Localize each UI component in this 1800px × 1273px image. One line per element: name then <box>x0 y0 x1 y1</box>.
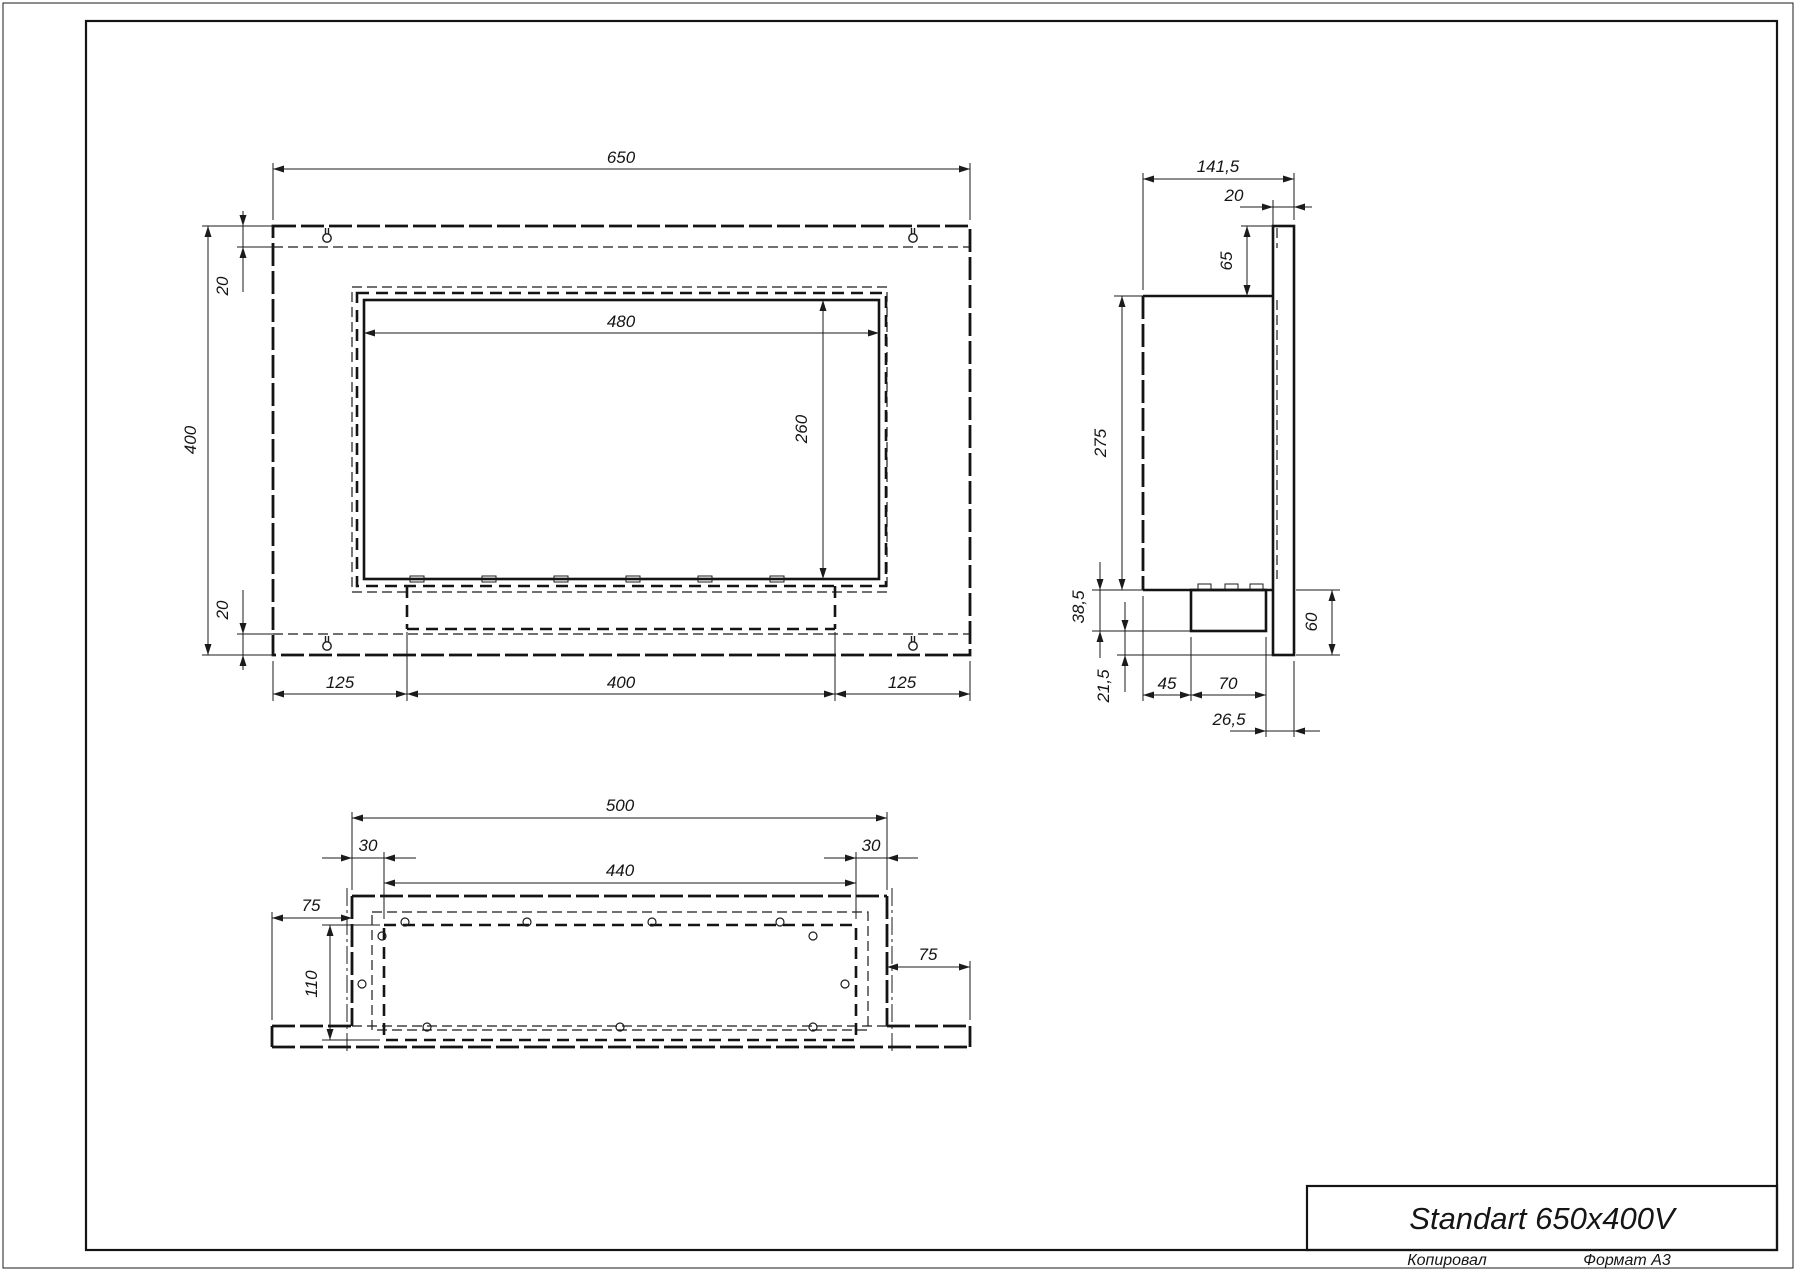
side-view-dimensions: 141,5 20 65 275 38,5 21,5 45 70 26,5 <box>1069 157 1340 737</box>
dim-body-width: 500 <box>606 796 635 815</box>
bottom-view <box>272 888 970 1054</box>
dim-body-height: 275 <box>1091 428 1110 458</box>
dim-front-height: 400 <box>181 425 200 454</box>
dim-tray-height: 38,5 <box>1069 590 1088 624</box>
dim-front-offset: 26,5 <box>1211 710 1246 729</box>
dim-bottom-left: 125 <box>326 673 355 692</box>
dim-opening-width-bottom: 440 <box>606 861 635 880</box>
dim-bottom-center: 400 <box>607 673 636 692</box>
dim-flange-depth: 20 <box>1224 186 1244 205</box>
dim-front-bottom-margin: 20 <box>213 600 232 620</box>
front-view-dimensions: 650 400 20 20 480 260 125 400 125 <box>181 148 970 701</box>
side-view <box>1143 226 1294 655</box>
dim-tray-bottom-offset: 21,5 <box>1094 669 1113 704</box>
sheet-frame <box>3 3 1793 1268</box>
dim-opening-height: 260 <box>792 414 811 444</box>
drawing-title: Standart 650x400V <box>1409 1201 1678 1236</box>
side-tray <box>1191 590 1266 631</box>
sheet-footer: Копировал Формат A3 <box>1407 1252 1671 1269</box>
screw-holes <box>358 918 849 1031</box>
front-view <box>273 226 970 655</box>
dim-front-width: 650 <box>607 148 636 167</box>
bottom-inner-hidden <box>372 912 868 1030</box>
dim-opening-width: 480 <box>607 312 636 331</box>
dim-total-depth: 141,5 <box>1197 157 1240 176</box>
title-block: Standart 650x400V <box>1307 1186 1777 1250</box>
dim-top-offset: 65 <box>1217 251 1236 270</box>
dim-tray-width: 70 <box>1219 674 1238 693</box>
format-label: Формат A3 <box>1583 1252 1671 1269</box>
dim-opening-depth: 110 <box>302 970 321 998</box>
technical-drawing-sheet: 650 400 20 20 480 260 125 400 125 <box>0 0 1800 1273</box>
dim-left-margin: 30 <box>359 836 378 855</box>
bottom-view-dimensions: 500 30 440 30 75 110 75 <box>272 796 970 1040</box>
dim-right-overhang: 75 <box>919 945 938 964</box>
dim-rear-offset: 45 <box>1158 674 1177 693</box>
dim-bottom-right: 125 <box>888 673 917 692</box>
front-outline <box>273 226 970 655</box>
copied-label: Копировал <box>1407 1252 1487 1269</box>
dim-left-overhang: 75 <box>302 896 321 915</box>
side-flange <box>1273 226 1294 655</box>
dim-right-margin: 30 <box>862 836 881 855</box>
dim-bottom-offset: 60 <box>1302 612 1321 631</box>
dim-front-top-margin: 20 <box>213 276 232 296</box>
